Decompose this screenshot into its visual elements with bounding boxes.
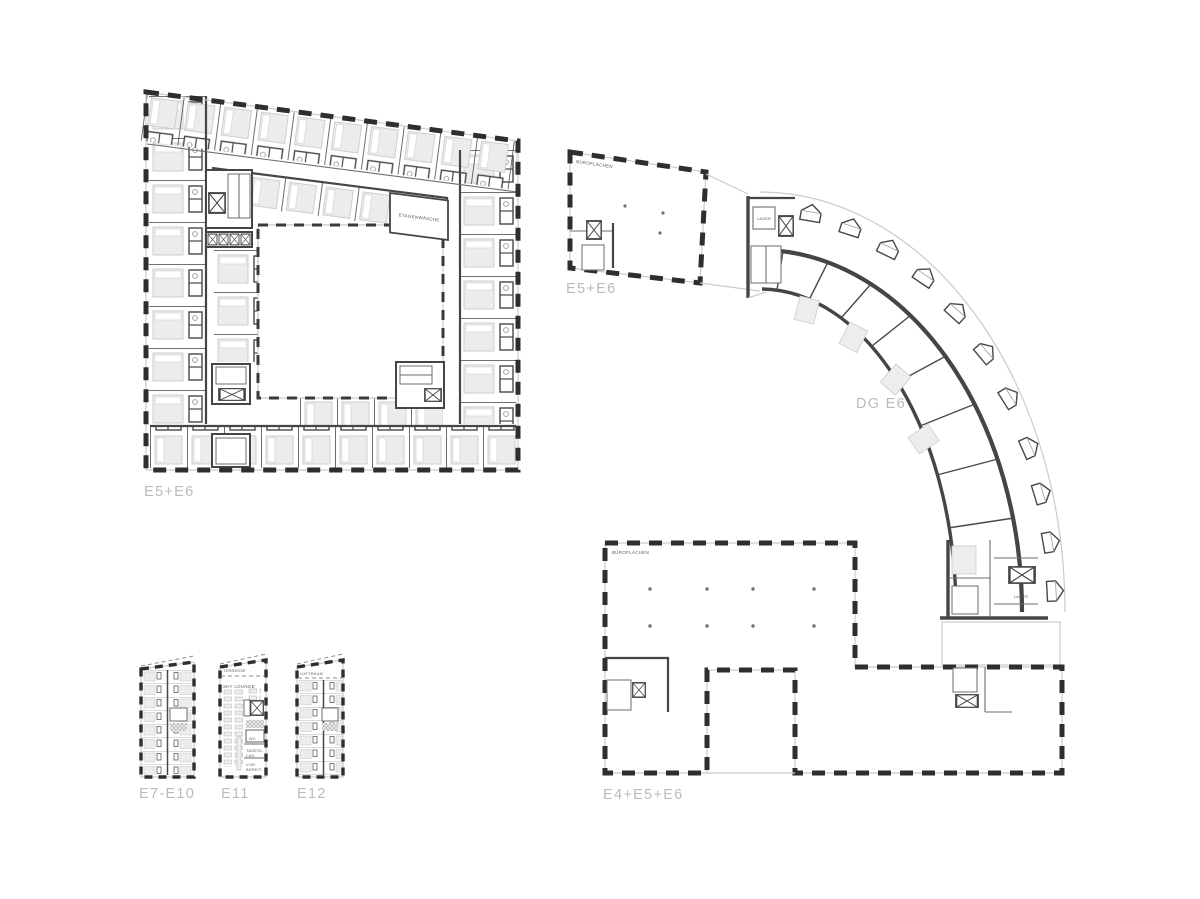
elevator-icon bbox=[1009, 567, 1034, 583]
elevator-icon bbox=[587, 221, 601, 239]
floor-plan-office-block: BÜROFLÄCHEN E4+E5+E6 bbox=[603, 543, 1062, 803]
elevator-icon bbox=[219, 389, 244, 401]
office-facade bbox=[605, 543, 1062, 773]
stair-icon bbox=[952, 586, 978, 614]
stair-icon bbox=[170, 708, 187, 721]
stair-core-rightbottom bbox=[396, 362, 444, 408]
plan-label-tower-roof: E12 bbox=[297, 786, 327, 802]
stair-core-left bbox=[605, 658, 668, 712]
stair-icon bbox=[953, 668, 977, 692]
stair-icon bbox=[244, 700, 250, 716]
floor-plan-tower-typical: E7-E10 bbox=[139, 656, 195, 802]
stair-core-leftbottom bbox=[212, 364, 250, 404]
floor-plan-drawing: ETAGENWÄSCHE E5+E6 BÜROFLÄCHEN E5+E6 bbox=[0, 0, 1200, 899]
terrace-label: TERRASSE bbox=[223, 669, 246, 673]
storage-bottom-label: LAGER bbox=[1014, 595, 1028, 599]
stair-core-bottom bbox=[212, 434, 250, 467]
office-outline bbox=[605, 543, 1062, 773]
floor-plan-tower-roof: LUFTRAUM E12 bbox=[297, 654, 343, 802]
elevator-icon bbox=[425, 389, 441, 402]
office-area-label: BÜROFLÄCHEN bbox=[576, 159, 613, 169]
prep-label-2: BEREIT. bbox=[246, 768, 262, 772]
storage-top-label: LAGER bbox=[757, 217, 771, 221]
office-area-label: BÜROFLÄCHEN bbox=[612, 550, 649, 555]
plan-label-office-block: E4+E5+E6 bbox=[603, 787, 684, 803]
plan-label-tower-typical: E7-E10 bbox=[139, 786, 195, 802]
floor-plan-tower-sky: TERRASSE SKY LOUNGE WC TAGESL. LAG. VOR-… bbox=[220, 654, 266, 802]
prep-label-1: VOR- bbox=[246, 763, 257, 767]
floor-plan-sheet: ETAGENWÄSCHE E5+E6 BÜROFLÄCHEN E5+E6 bbox=[0, 0, 1200, 899]
stair-core-right bbox=[953, 667, 1012, 712]
shaft-hatch bbox=[246, 720, 264, 728]
column-grid bbox=[648, 587, 815, 627]
floor-plan-attic-wing: BÜROFLÄCHEN E5+E6 bbox=[566, 152, 1065, 618]
lounge-tables bbox=[223, 689, 245, 767]
counter bbox=[237, 737, 241, 770]
stair-icon bbox=[607, 680, 631, 710]
stair-icon bbox=[322, 708, 338, 721]
office-area-block: BÜROFLÄCHEN E5+E6 bbox=[566, 152, 706, 297]
laundry-room: ETAGENWÄSCHE bbox=[390, 193, 448, 240]
void-label: LUFTRAUM bbox=[300, 672, 323, 676]
terrace-outline bbox=[942, 622, 1060, 665]
plan-label-tower-sky: E11 bbox=[221, 786, 250, 802]
stair-icon bbox=[582, 245, 604, 270]
elevator-icon bbox=[251, 701, 264, 715]
lounge-label: SKY LOUNGE bbox=[223, 684, 255, 689]
curved-wing: LAGER LAGER bbox=[748, 192, 1065, 618]
storage-label-1: TAGESL. bbox=[246, 749, 264, 753]
wc-label: WC bbox=[249, 737, 256, 741]
shaft-hatch bbox=[322, 723, 338, 731]
storage-label-2: LAG. bbox=[246, 754, 256, 758]
elevator-icon bbox=[209, 193, 225, 213]
shaft-hatch bbox=[170, 723, 187, 731]
elevator-icon bbox=[779, 216, 793, 236]
stair-core-topleft bbox=[206, 170, 252, 228]
plan-label-office-wing: E5+E6 bbox=[566, 281, 616, 297]
plan-label-hotel-ring: E5+E6 bbox=[144, 484, 194, 500]
floor-plan-hotel-ring: ETAGENWÄSCHE E5+E6 bbox=[141, 92, 519, 500]
wing-top-core: LAGER bbox=[748, 196, 795, 298]
plan-label-attic-wing: DG E6 bbox=[856, 396, 906, 412]
elevator-icon bbox=[956, 695, 978, 708]
elevator-icon bbox=[633, 683, 646, 697]
shaft-row bbox=[206, 232, 252, 247]
